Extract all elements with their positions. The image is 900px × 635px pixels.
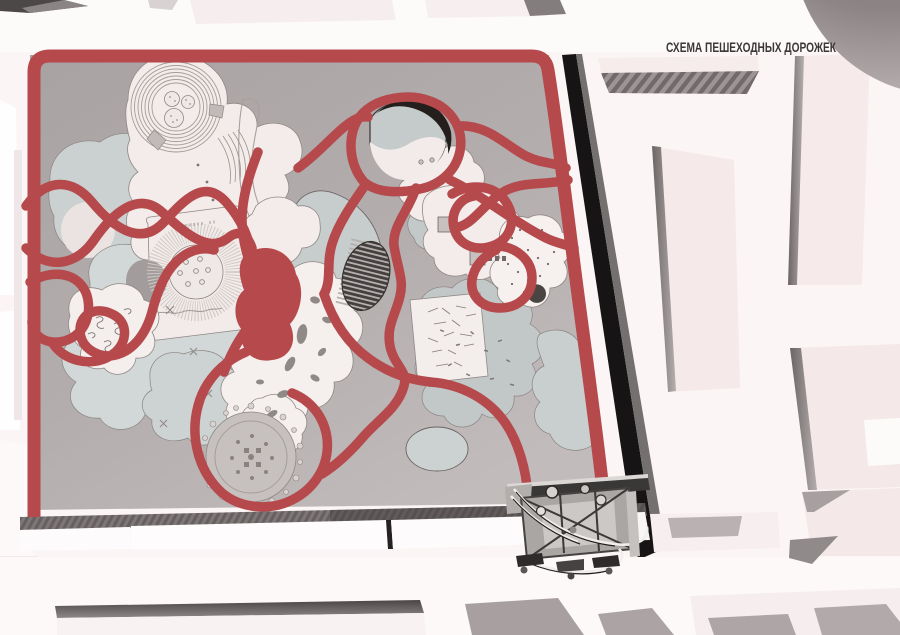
svg-text:СХЕМА ПЕШЕХОДНЫХ ДОРОЖЕК: СХЕМА ПЕШЕХОДНЫХ ДОРОЖЕК (666, 39, 836, 55)
